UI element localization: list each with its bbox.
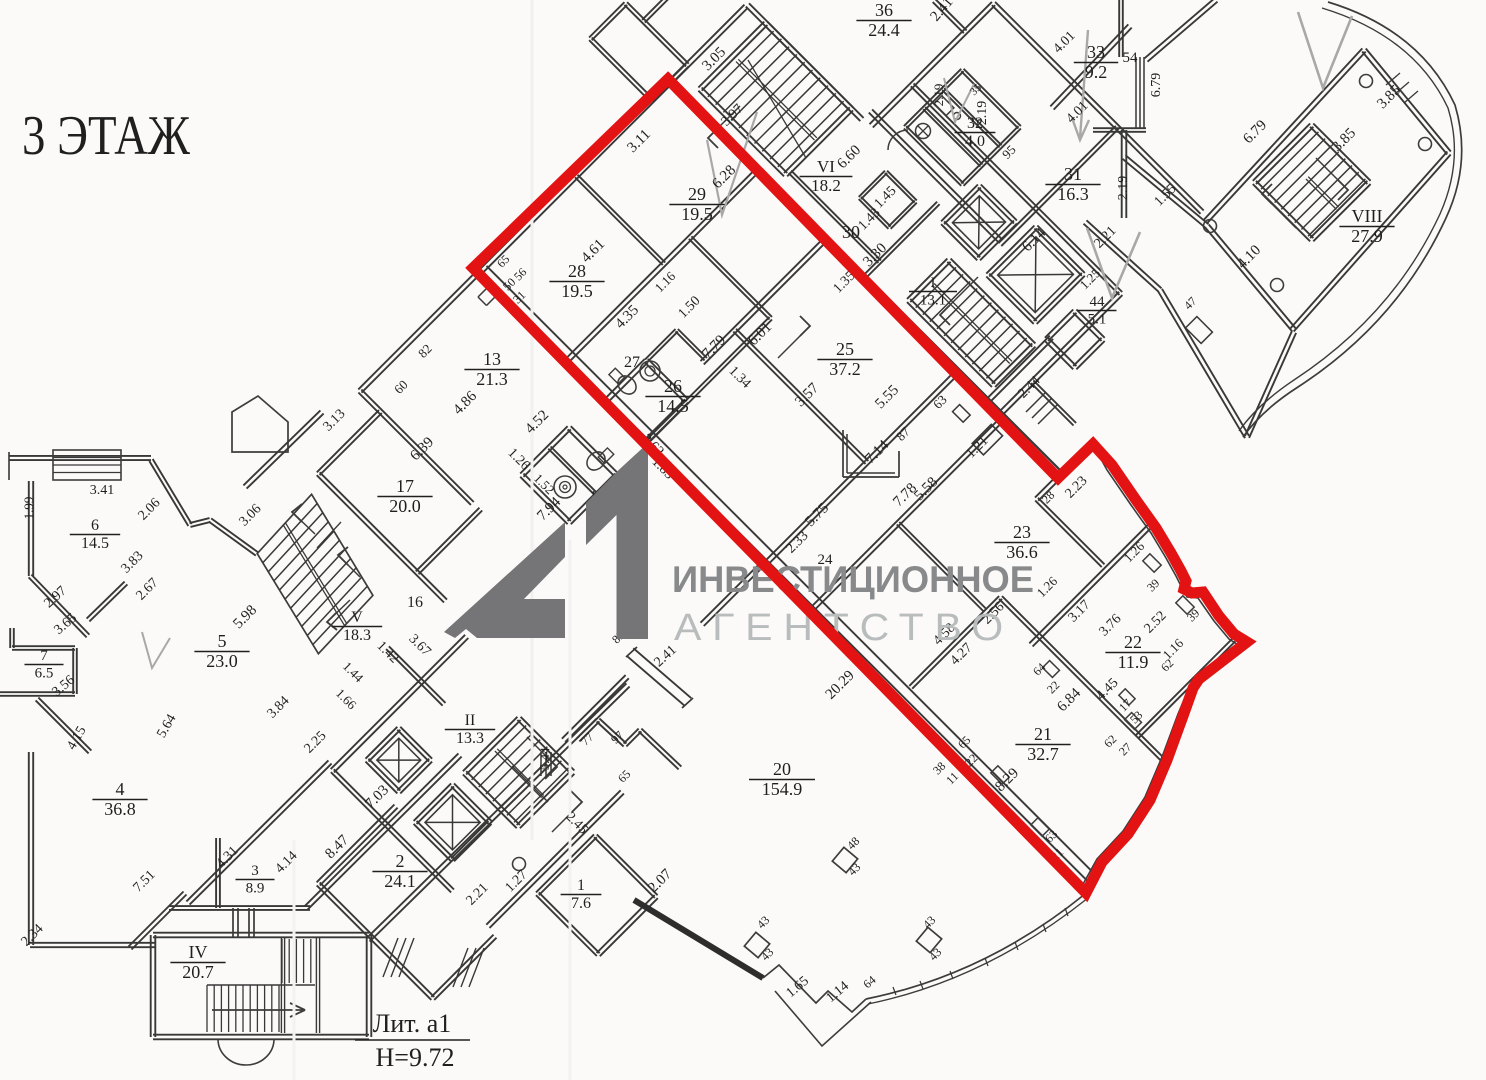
svg-text:25: 25 (836, 339, 854, 359)
svg-text:IV: IV (189, 942, 208, 962)
svg-text:54: 54 (1123, 50, 1139, 66)
svg-text:14.5: 14.5 (657, 396, 689, 416)
svg-text:18.3: 18.3 (343, 627, 371, 644)
svg-text:13: 13 (483, 349, 501, 369)
svg-text:36.8: 36.8 (104, 799, 136, 819)
svg-text:44: 44 (1090, 294, 1106, 310)
svg-text:ИНВЕСТИЦИОННОЕ: ИНВЕСТИЦИОННОЕ (672, 559, 1034, 600)
svg-text:11.9: 11.9 (1118, 652, 1149, 672)
svg-text:23: 23 (1013, 522, 1031, 542)
svg-text:4.0: 4.0 (965, 133, 985, 150)
svg-text:36: 36 (875, 0, 893, 20)
svg-text:3 ЭТАЖ: 3 ЭТАЖ (22, 105, 191, 167)
svg-text:4: 4 (116, 779, 125, 799)
svg-text:Н=9.72: Н=9.72 (376, 1043, 455, 1072)
svg-text:7.6: 7.6 (571, 895, 591, 912)
svg-text:26: 26 (664, 376, 682, 396)
svg-text:5.44: 5.44 (537, 747, 553, 771)
svg-text:2.19: 2.19 (975, 101, 990, 126)
svg-text:27: 27 (624, 354, 640, 371)
svg-text:7: 7 (40, 648, 48, 664)
svg-text:V: V (351, 609, 363, 626)
svg-text:20.7: 20.7 (182, 962, 214, 982)
svg-text:13.3: 13.3 (456, 730, 484, 747)
svg-text:2: 2 (396, 851, 405, 871)
svg-text:24.1: 24.1 (384, 871, 416, 891)
svg-text:6.5: 6.5 (35, 665, 54, 681)
svg-text:16.3: 16.3 (1057, 184, 1089, 204)
svg-text:154.9: 154.9 (762, 779, 803, 799)
svg-text:1.99: 1.99 (21, 497, 36, 520)
svg-text:2.19: 2.19 (1116, 176, 1131, 201)
svg-text:23.0: 23.0 (206, 651, 238, 671)
svg-text:II: II (465, 712, 476, 729)
svg-text:6: 6 (91, 517, 99, 534)
svg-text:37.2: 37.2 (829, 359, 861, 379)
svg-text:18.2: 18.2 (811, 176, 841, 195)
svg-text:6.79: 6.79 (1149, 73, 1164, 98)
svg-text:21.3: 21.3 (476, 369, 508, 389)
svg-text:32.7: 32.7 (1027, 744, 1059, 764)
svg-text:17: 17 (396, 476, 414, 496)
svg-text:16: 16 (407, 594, 423, 611)
svg-text:28: 28 (568, 261, 586, 281)
svg-text:Лит. a1: Лит. a1 (373, 1009, 452, 1038)
svg-text:8.9: 8.9 (246, 880, 265, 896)
svg-text:22: 22 (1124, 632, 1142, 652)
svg-text:3.41: 3.41 (90, 483, 115, 498)
svg-text:20: 20 (773, 759, 791, 779)
svg-text:3: 3 (251, 863, 259, 879)
svg-text:19.5: 19.5 (681, 204, 713, 224)
svg-text:9.2: 9.2 (1085, 62, 1108, 82)
svg-text:1: 1 (577, 877, 585, 894)
svg-text:14.5: 14.5 (81, 535, 109, 552)
svg-text:I: I (931, 275, 936, 291)
svg-text:27.9: 27.9 (1351, 226, 1383, 246)
svg-text:13.1: 13.1 (920, 292, 946, 308)
svg-text:VI: VI (817, 157, 835, 176)
svg-text:20.0: 20.0 (389, 496, 421, 516)
svg-text:5.1: 5.1 (1088, 311, 1107, 327)
svg-text:24.4: 24.4 (868, 20, 900, 40)
svg-text:21: 21 (1034, 724, 1052, 744)
svg-text:VIII: VIII (1352, 206, 1383, 226)
svg-text:33: 33 (1087, 42, 1105, 62)
svg-text:2.19: 2.19 (931, 84, 946, 107)
svg-text:31: 31 (1064, 164, 1082, 184)
svg-text:5: 5 (218, 631, 227, 651)
svg-text:29: 29 (688, 184, 706, 204)
svg-text:19.5: 19.5 (561, 281, 593, 301)
